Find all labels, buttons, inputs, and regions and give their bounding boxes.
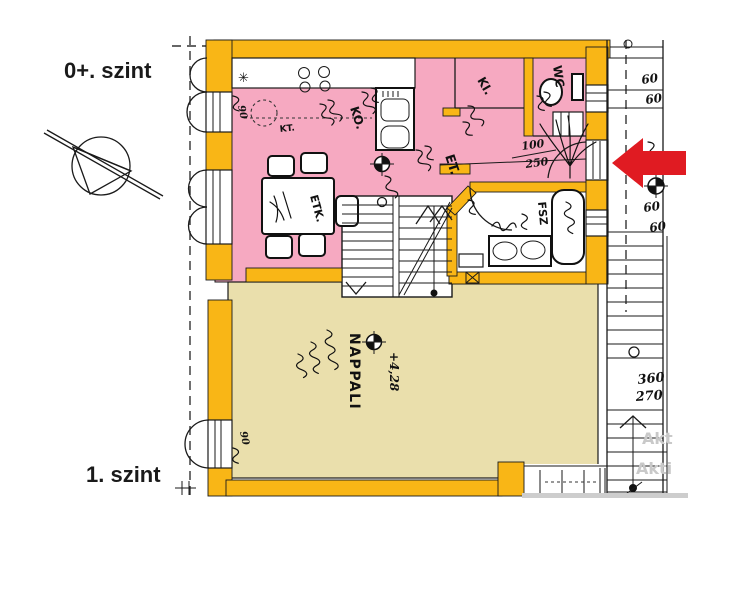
door-arc bbox=[190, 58, 207, 92]
window bbox=[208, 420, 232, 468]
wall-pantry-wc bbox=[524, 58, 533, 136]
shadow-line bbox=[522, 493, 688, 498]
room-label-bathroom: FSZ bbox=[535, 201, 550, 225]
stair-dim-width: 360 bbox=[637, 370, 666, 388]
kitchen-counter bbox=[232, 58, 415, 88]
chair bbox=[266, 236, 292, 258]
wall-left-pillar-2 bbox=[206, 132, 232, 170]
balcony-door bbox=[206, 170, 232, 244]
dim-60: 60 bbox=[644, 91, 663, 107]
watermark-text: Akti bbox=[636, 459, 672, 478]
wall-right-2 bbox=[586, 112, 608, 140]
chair bbox=[336, 196, 358, 226]
wall-bottom bbox=[226, 480, 502, 496]
stair-node bbox=[629, 347, 639, 357]
chair bbox=[268, 156, 294, 176]
wall-right-3 bbox=[586, 180, 608, 210]
wall-left-pillar-4 bbox=[208, 300, 232, 420]
stair-arrow-end bbox=[431, 290, 438, 297]
label-side-table: KT. bbox=[279, 123, 295, 135]
bathtub bbox=[552, 190, 584, 264]
wall-right-1 bbox=[586, 47, 608, 85]
bench bbox=[459, 254, 483, 267]
floor-plan-page: 0+. szint 1. szint KO. ET. ETK. KI. WC F… bbox=[0, 0, 750, 610]
door-arc bbox=[185, 420, 209, 468]
label-lower-floor: 1. szint bbox=[86, 462, 161, 487]
level-mark-text: +4,28 bbox=[387, 352, 401, 392]
ext-stair-treads-upper bbox=[607, 232, 663, 358]
wall-top bbox=[214, 40, 610, 58]
door-arc bbox=[189, 207, 207, 244]
dim-60: 60 bbox=[642, 199, 661, 215]
room-label-living: NAPPALI bbox=[346, 333, 362, 410]
toilet-tank bbox=[572, 74, 583, 100]
ext-stair-treads-lower bbox=[607, 410, 667, 492]
chair bbox=[299, 234, 325, 256]
dim-60: 60 bbox=[640, 71, 659, 87]
compass-icon bbox=[44, 130, 163, 199]
survey-marker-icon bbox=[644, 174, 668, 198]
window bbox=[206, 92, 232, 132]
wall-bath-bottom bbox=[449, 272, 595, 284]
dim-60: 60 bbox=[648, 219, 667, 235]
window bbox=[586, 210, 608, 236]
wall-stub-kitchen bbox=[443, 108, 460, 116]
vanity bbox=[489, 236, 551, 266]
entrance-arrow-icon bbox=[612, 138, 686, 188]
wall-right-4 bbox=[586, 236, 608, 284]
wall-level-split bbox=[246, 268, 342, 282]
sink-unit bbox=[376, 88, 414, 150]
chair bbox=[301, 153, 327, 173]
window bbox=[586, 85, 608, 112]
living-room-area bbox=[228, 282, 598, 478]
asterisk-symbol: ✳ bbox=[238, 70, 249, 85]
floor-plan-drawing: 0+. szint 1. szint KO. ET. ETK. KI. WC F… bbox=[0, 0, 750, 610]
wall-left-pillar-1 bbox=[206, 40, 232, 92]
watermark-text: Akt bbox=[642, 429, 673, 448]
wall-end-block bbox=[498, 462, 524, 496]
door-arc bbox=[189, 170, 207, 207]
stair-dim-height: 270 bbox=[634, 388, 663, 405]
label-upper-floor: 0+. szint bbox=[64, 58, 152, 83]
wall-left-pillar-3 bbox=[206, 244, 232, 280]
